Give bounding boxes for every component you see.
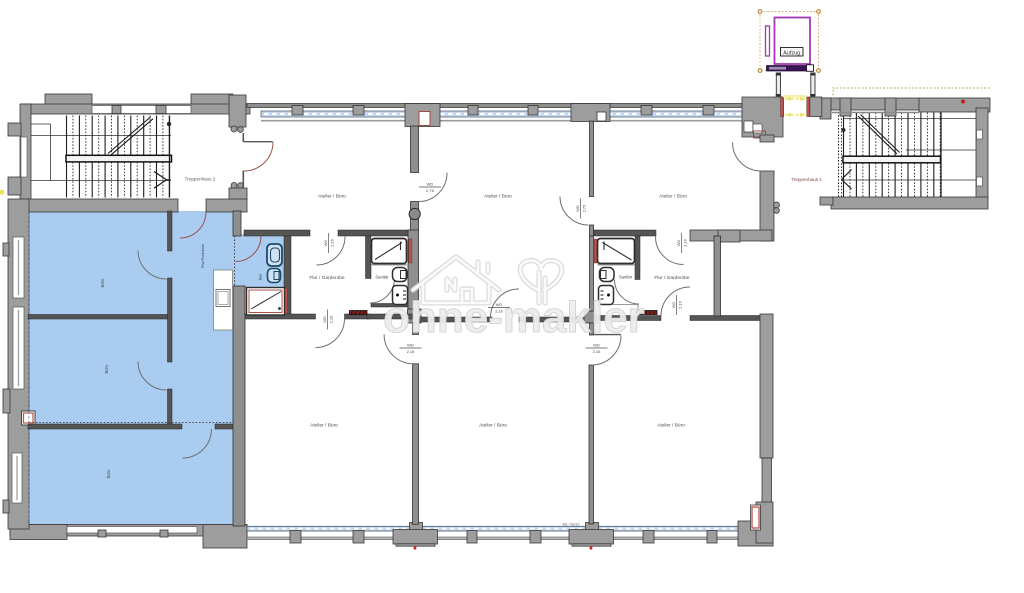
svg-text:Flur/Teeküche: Flur/Teeküche [201, 244, 205, 268]
svg-text:Atelier / Büro: Atelier / Büro [310, 423, 338, 429]
svg-text:2,16: 2,16 [330, 238, 335, 247]
svg-text:WD: WD [575, 205, 580, 212]
svg-text:Bad: Bad [259, 274, 263, 280]
svg-text:WD: WD [407, 343, 414, 348]
svg-text:Sanitär: Sanitär [619, 275, 633, 280]
svg-text:2,16: 2,16 [593, 349, 602, 354]
svg-text:Treppenhaus 1: Treppenhaus 1 [791, 177, 822, 182]
svg-text:WD: WD [427, 182, 434, 187]
svg-text:2,76: 2,76 [426, 188, 435, 193]
svg-text:2,76: 2,76 [582, 204, 587, 213]
svg-text:WD: WD [323, 240, 328, 247]
svg-text:WD: WD [676, 240, 681, 247]
svg-text:ohne-makler: ohne-makler [383, 293, 645, 342]
svg-text:Atelier / Büro: Atelier / Büro [479, 423, 507, 429]
svg-text:2,16: 2,16 [407, 349, 416, 354]
svg-text:Atelier / Büro: Atelier / Büro [318, 194, 346, 200]
svg-text:Flur / Garderobe: Flur / Garderobe [309, 275, 345, 281]
svg-text:Flur / Garderobe: Flur / Garderobe [654, 275, 690, 281]
svg-text:Sanitär: Sanitär [375, 275, 389, 280]
svg-text:Atelier / Büro: Atelier / Büro [659, 194, 687, 200]
svg-text:2,16: 2,16 [683, 238, 688, 247]
svg-text:Aufzug: Aufzug [783, 51, 800, 57]
svg-text:2,16: 2,16 [329, 315, 334, 324]
svg-text:Büro: Büro [100, 278, 105, 288]
svg-text:Treppenhaus 2: Treppenhaus 2 [185, 177, 216, 182]
svg-text:Büro: Büro [106, 469, 111, 479]
svg-text:Büro: Büro [104, 364, 109, 374]
svg-text:WD: WD [671, 302, 676, 309]
svg-text:WD: WD [593, 343, 600, 348]
svg-text:Atelier / Büro: Atelier / Büro [484, 194, 512, 200]
svg-text:WD: WD [322, 316, 327, 323]
svg-text:Atelier / Büro: Atelier / Büro [657, 423, 685, 429]
svg-text:2,16: 2,16 [678, 300, 683, 309]
svg-text:WL 7dx/12: WL 7dx/12 [562, 523, 579, 527]
